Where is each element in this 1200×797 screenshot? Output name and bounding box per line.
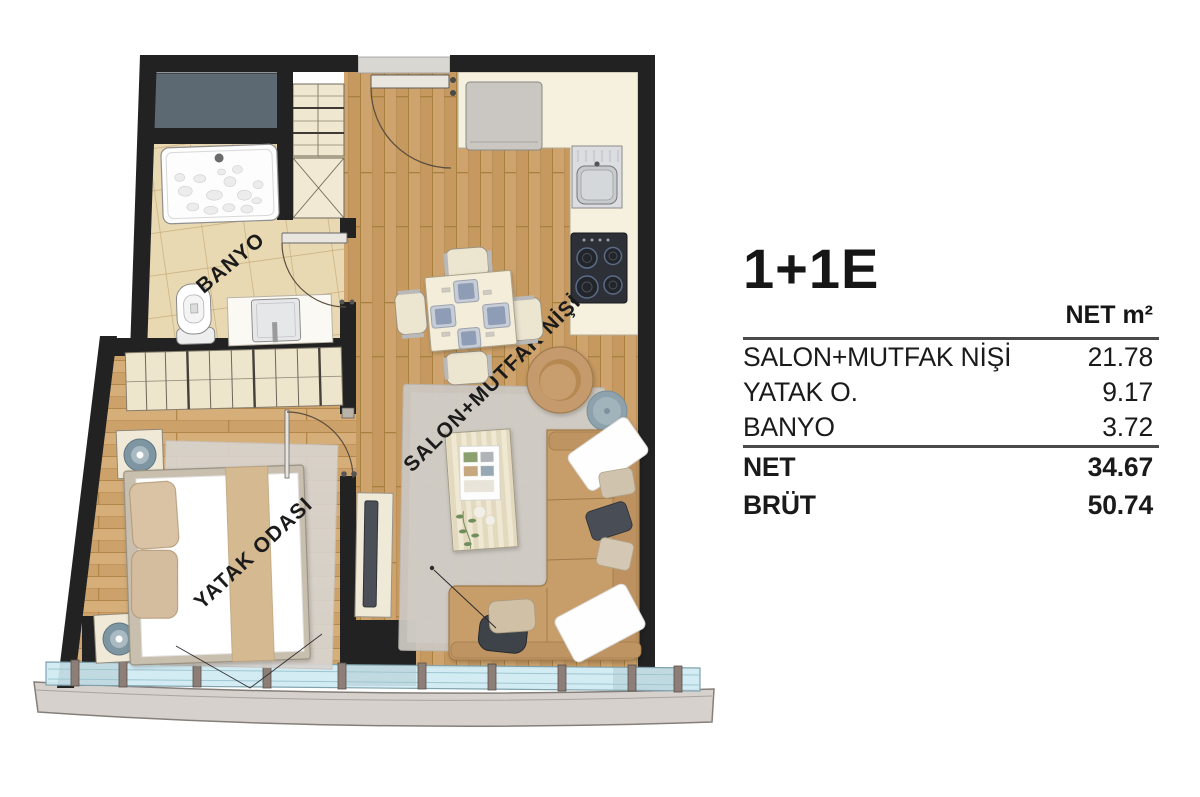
shower bbox=[161, 144, 280, 224]
area-table: NET m² SALON+MUTFAK NİŞİ 21.78 YATAK O. … bbox=[743, 299, 1159, 524]
round-armchair bbox=[527, 347, 593, 413]
room-name: YATAK O. bbox=[743, 377, 858, 408]
total-label: NET bbox=[743, 452, 795, 483]
table-row-total-brut: BRÜT 50.74 bbox=[743, 486, 1159, 524]
bathroom-door-leaf bbox=[282, 233, 347, 243]
room-name: SALON+MUTFAK NİŞİ bbox=[743, 342, 1011, 373]
shaft bbox=[148, 73, 280, 133]
room-area: 3.72 bbox=[1102, 412, 1153, 443]
plan-type-title: 1+1E bbox=[743, 241, 1159, 297]
entry-threshold bbox=[358, 57, 450, 73]
total-label: BRÜT bbox=[743, 490, 816, 521]
vanity bbox=[227, 294, 333, 346]
pillow bbox=[132, 550, 178, 618]
bedroom-door-leaf bbox=[285, 410, 289, 478]
coffee-table bbox=[445, 429, 518, 551]
beige-cushion bbox=[598, 467, 636, 499]
room-area: 21.78 bbox=[1088, 342, 1153, 373]
pouf-cushion bbox=[488, 598, 536, 633]
room-name: BANYO bbox=[743, 412, 835, 443]
table-row: SALON+MUTFAK NİŞİ 21.78 bbox=[743, 340, 1159, 375]
kitchen-sink bbox=[572, 146, 622, 208]
bedroom: YATAK ODASI bbox=[94, 347, 357, 688]
total-area: 34.67 bbox=[1088, 452, 1153, 483]
table-header: NET m² bbox=[743, 299, 1159, 337]
table-row-total-net: NET 34.67 bbox=[743, 448, 1159, 486]
floorplan-svg: BANYO bbox=[0, 0, 740, 797]
dining-table bbox=[425, 270, 517, 351]
area-panel: 1+1E NET m² SALON+MUTFAK NİŞİ 21.78 YATA… bbox=[743, 241, 1159, 524]
dining-chair-west bbox=[394, 289, 428, 339]
dining-chair-south bbox=[443, 350, 493, 385]
faucet bbox=[594, 161, 599, 166]
tv bbox=[363, 501, 378, 607]
total-area: 50.74 bbox=[1088, 490, 1153, 521]
room-area: 9.17 bbox=[1102, 377, 1153, 408]
screenshot-root: BANYO bbox=[0, 0, 1200, 797]
pillow bbox=[129, 481, 179, 550]
entry-door-leaf bbox=[371, 75, 449, 88]
fridge bbox=[466, 82, 542, 150]
wardrobe bbox=[125, 347, 342, 411]
vanity-faucet bbox=[272, 322, 278, 342]
tv-unit bbox=[355, 493, 393, 618]
table-row: YATAK O. 9.17 bbox=[743, 375, 1159, 410]
entry-closet bbox=[293, 84, 344, 218]
bed bbox=[124, 465, 311, 665]
table-row: BANYO 3.72 bbox=[743, 410, 1159, 445]
cooktop bbox=[571, 233, 627, 303]
